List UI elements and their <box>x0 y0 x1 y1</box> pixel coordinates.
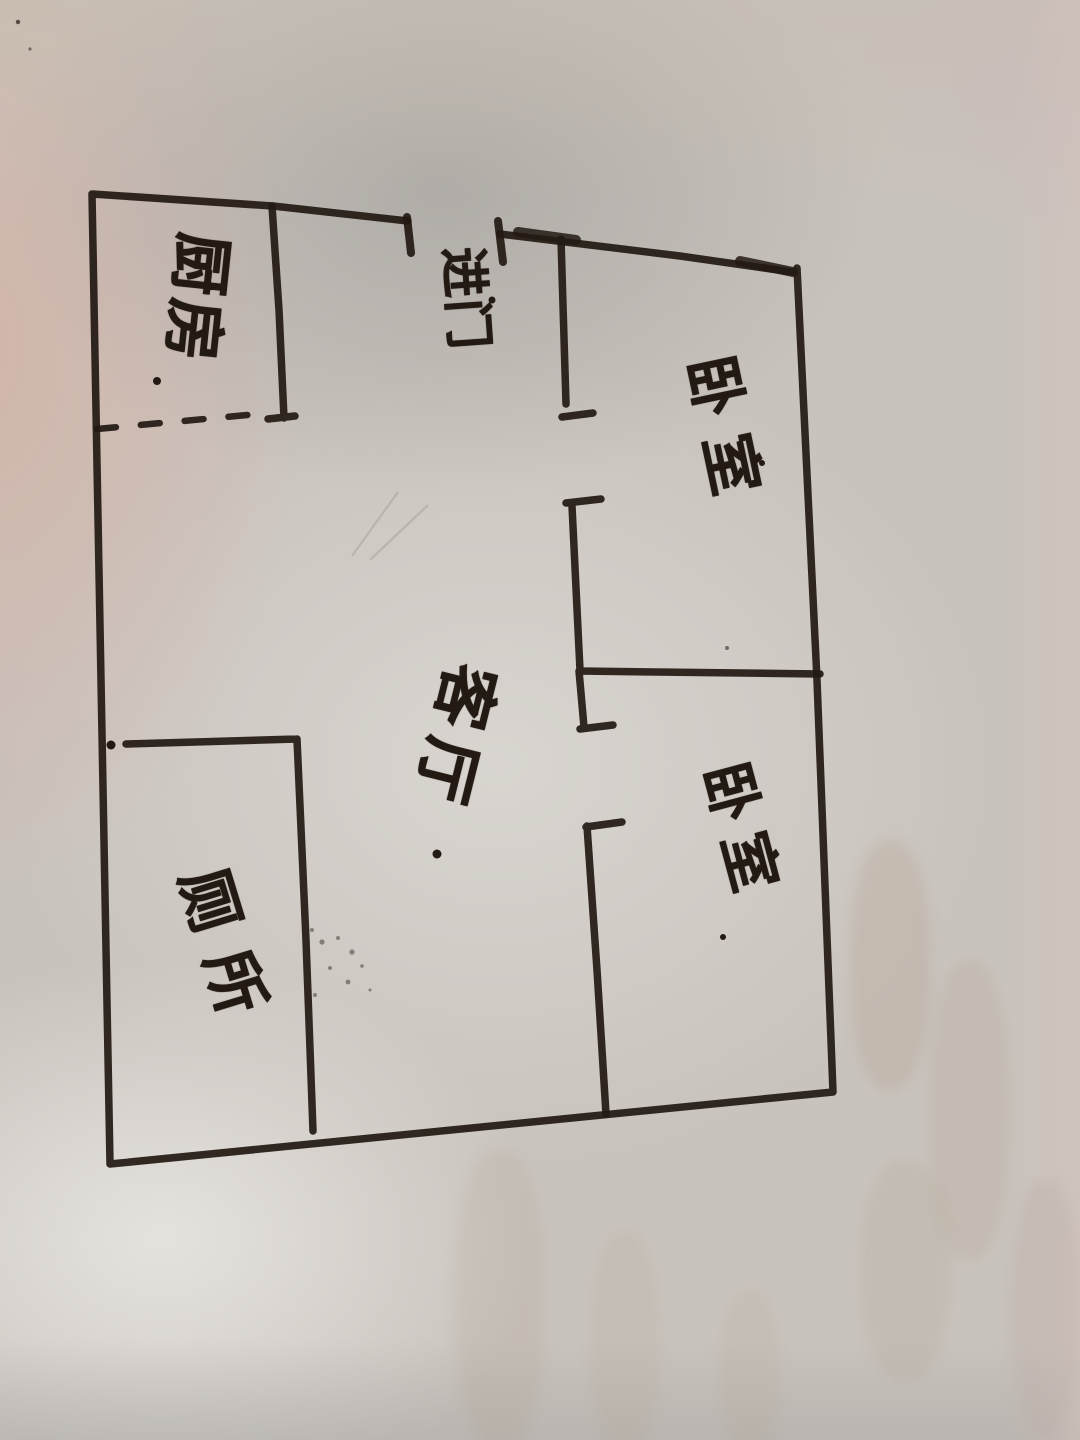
kitchen-partition-wall <box>268 206 295 419</box>
pencil-marks <box>352 492 428 560</box>
bleed-through-mark <box>720 1290 780 1440</box>
bleed-through-mark <box>850 840 930 1090</box>
bleed-through-mark <box>455 1150 545 1440</box>
ink-dots <box>16 20 765 940</box>
floor-plan-photo: 厨房 进门 卧室 客厅 卧室 厕所 <box>0 0 1080 1440</box>
bleed-through-mark <box>860 1160 950 1380</box>
kitchen-doorway-dashed-line <box>97 414 258 429</box>
ink-speckles <box>310 928 372 997</box>
bleed-through-mark <box>1010 1180 1080 1440</box>
entrance-label: 进门 <box>437 245 494 352</box>
room-label-kitchen: 厨房 <box>159 230 234 368</box>
bleed-through-mark <box>590 1230 660 1440</box>
